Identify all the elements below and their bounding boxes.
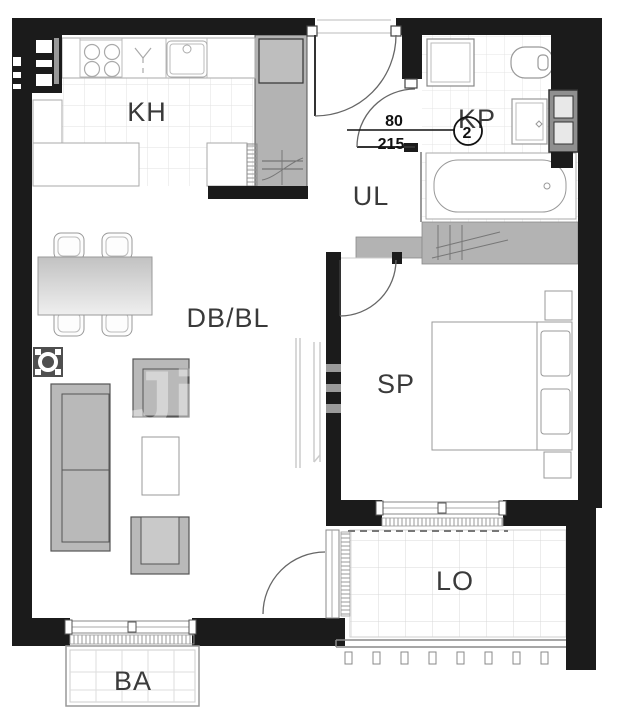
nightstand bbox=[545, 291, 572, 320]
nightstand bbox=[544, 452, 571, 478]
wall-column-ring bbox=[33, 347, 63, 377]
loggia-label: LO bbox=[436, 566, 474, 596]
hallway-label: UL bbox=[353, 181, 390, 211]
bedroom-label: SP bbox=[377, 369, 415, 399]
washing-machine bbox=[427, 39, 474, 86]
pillow bbox=[541, 331, 570, 376]
door-number: 2 bbox=[463, 125, 472, 142]
coffee-table bbox=[142, 437, 179, 495]
watermark: Ji bbox=[130, 354, 195, 442]
stove-icon bbox=[80, 40, 122, 77]
floor-plan-page: Ji bbox=[0, 0, 618, 712]
kitchen-sink-icon bbox=[167, 41, 207, 77]
balcony-label: BA bbox=[114, 666, 152, 696]
living-dining-label: DB/BL bbox=[186, 303, 269, 333]
bathroom-shaft bbox=[549, 35, 578, 168]
pillow bbox=[541, 389, 570, 434]
kitchen-radiator bbox=[247, 144, 257, 186]
dashed-wall-section bbox=[326, 352, 341, 413]
armchair-second bbox=[131, 517, 189, 574]
bathroom-sink-icon bbox=[512, 99, 547, 144]
kitchen-label: KH bbox=[127, 97, 167, 127]
dining-table bbox=[38, 257, 152, 315]
toilet-icon bbox=[511, 47, 553, 78]
door-width: 80 bbox=[385, 113, 403, 130]
floor-plan: Ji bbox=[0, 0, 618, 712]
sofa bbox=[51, 384, 110, 551]
bed bbox=[432, 322, 572, 450]
hall-wardrobe bbox=[255, 35, 307, 187]
kitchen-right-counter bbox=[207, 143, 247, 186]
door-height: 215 bbox=[378, 136, 405, 153]
